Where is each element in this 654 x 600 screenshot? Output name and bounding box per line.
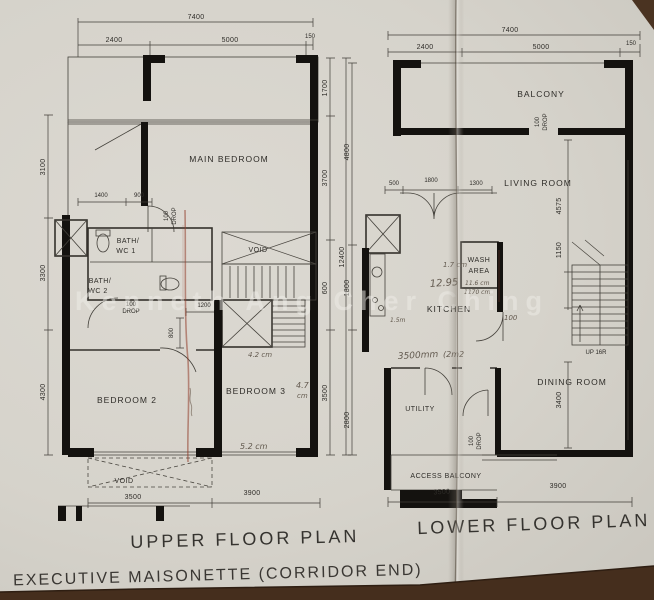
wall <box>143 55 151 101</box>
dim-line <box>564 362 572 448</box>
handwritten-note: 3500mm <box>398 350 439 362</box>
stairs-label: UP 16R <box>586 350 608 356</box>
void-bottom-strip <box>88 458 212 487</box>
dim-label: 2400 <box>417 44 434 51</box>
toilet-icon <box>97 234 109 252</box>
room-label: DINING ROOM <box>537 377 607 387</box>
wall <box>393 60 401 136</box>
lift-shaft <box>366 215 400 253</box>
dim-label: 12400 <box>339 247 346 268</box>
handwritten-note: 5.2 cm <box>240 442 268 451</box>
dim-label: 5000 <box>222 37 239 44</box>
wall <box>76 506 82 521</box>
door-arc <box>160 348 196 372</box>
wall <box>625 60 633 136</box>
scanned-floorplan-photo: 7400 2400 5000 150 3100 3300 4300 1700 3… <box>0 0 654 600</box>
handwritten-note: 1.5m <box>390 317 406 324</box>
drop-label: 100 <box>164 210 170 221</box>
room-label: WC 1 <box>116 248 136 255</box>
dim-label: 1800 <box>424 178 438 184</box>
wall <box>625 136 633 455</box>
wall <box>296 448 318 457</box>
dim-label: 3100 <box>40 159 47 176</box>
toilet-tank <box>96 230 110 236</box>
dim-label: 3500 <box>433 489 450 497</box>
red-crease-stain <box>185 210 189 462</box>
upper-floor-plan: 7400 2400 5000 150 3100 3300 4300 1700 3… <box>40 14 351 521</box>
room-label: BEDROOM 3 <box>226 386 286 396</box>
door-arc <box>425 368 452 395</box>
dim-label: 1150 <box>556 242 563 258</box>
wall <box>401 128 529 135</box>
dim-label: 3900 <box>244 490 261 497</box>
dim-label: 3500 <box>125 494 142 501</box>
stairs-lower <box>572 240 628 345</box>
room-label: WASH <box>468 257 491 264</box>
window-line <box>94 452 296 455</box>
dim-label: 3500 <box>322 385 329 402</box>
dim-line <box>176 318 184 348</box>
dim-label: 2400 <box>106 37 123 44</box>
wall <box>156 506 164 521</box>
room-label: LIVING ROOM <box>504 178 572 188</box>
room-label: BATH/ <box>89 278 112 285</box>
room-label: VOID <box>114 478 133 485</box>
lift-shaft <box>55 220 87 256</box>
room-label: BALCONY <box>517 89 565 99</box>
dim-line <box>88 498 320 508</box>
sink-icon <box>372 267 382 277</box>
dim-label: 3300 <box>40 265 47 282</box>
handwritten-note: 4.2 cm <box>248 351 272 359</box>
handwritten-note: cm <box>297 392 308 400</box>
drop-label: 100 <box>535 116 541 127</box>
bath-divider <box>90 228 212 262</box>
dim-label: 4300 <box>40 384 47 401</box>
watermark-text: Kenneth Ang Cher Ching <box>75 286 549 316</box>
wall <box>58 506 66 521</box>
wall <box>68 448 94 457</box>
room-label: BEDROOM 2 <box>97 395 157 405</box>
wall <box>310 55 318 123</box>
wall <box>196 448 222 457</box>
wall <box>497 450 633 457</box>
room-label: MAIN BEDROOM <box>189 154 269 164</box>
room-label: UTILITY <box>405 406 435 413</box>
room-label: VOID <box>248 247 267 254</box>
dim-label: 2800 <box>344 412 351 429</box>
dim-label: 150 <box>305 34 316 40</box>
floorplan-drawing: 7400 2400 5000 150 3100 3300 4300 1700 3… <box>0 0 654 600</box>
wall <box>62 215 70 455</box>
wall <box>558 128 625 135</box>
drop-label: DROP <box>477 432 483 449</box>
drop-label: 100 <box>469 435 475 446</box>
dim-line <box>78 198 152 206</box>
dim-label: 1400 <box>94 193 108 199</box>
dim-label: 500 <box>389 181 400 187</box>
dim-line <box>348 63 357 455</box>
drop-label: DROP <box>172 207 178 224</box>
dim-label: 1300 <box>469 181 483 187</box>
room-label: BATH/ <box>117 238 140 245</box>
dim-label: 4800 <box>344 144 351 161</box>
room-label: AREA <box>468 268 489 275</box>
dim-label: 4575 <box>556 198 563 215</box>
dim-label: 3400 <box>556 392 563 409</box>
dim-label: 3900 <box>550 483 567 490</box>
handwritten-note: 4.7 <box>296 381 310 390</box>
dim-line <box>564 140 572 310</box>
dim-label: 7400 <box>502 27 519 34</box>
wall <box>495 368 501 455</box>
dim-label: 5000 <box>533 44 550 51</box>
dim-label: 7400 <box>188 14 205 21</box>
pencil-squiggle <box>190 388 192 416</box>
door-arc <box>463 390 488 416</box>
wall-line <box>68 122 143 215</box>
dim-label: 800 <box>169 327 175 338</box>
door-arc <box>476 312 503 341</box>
lower-floor-plan: 7400 2400 5000 150 4800 1800 2800 BALCON… <box>344 27 640 508</box>
wall <box>384 368 391 490</box>
dim-label: 3700 <box>322 170 329 187</box>
dim-label: 900 <box>134 193 145 199</box>
wall <box>214 300 222 455</box>
room-label: ACCESS BALCONY <box>410 473 481 480</box>
void-hatch <box>222 232 316 264</box>
balcony-edge <box>395 63 630 135</box>
dim-label: 150 <box>626 41 637 47</box>
dim-label: 1700 <box>322 80 329 97</box>
table-corner <box>632 0 654 30</box>
void-over-balcony <box>68 57 318 122</box>
upper-plan-title: UPPER FLOOR PLAN <box>130 526 359 552</box>
drop-label: DROP <box>543 113 549 130</box>
